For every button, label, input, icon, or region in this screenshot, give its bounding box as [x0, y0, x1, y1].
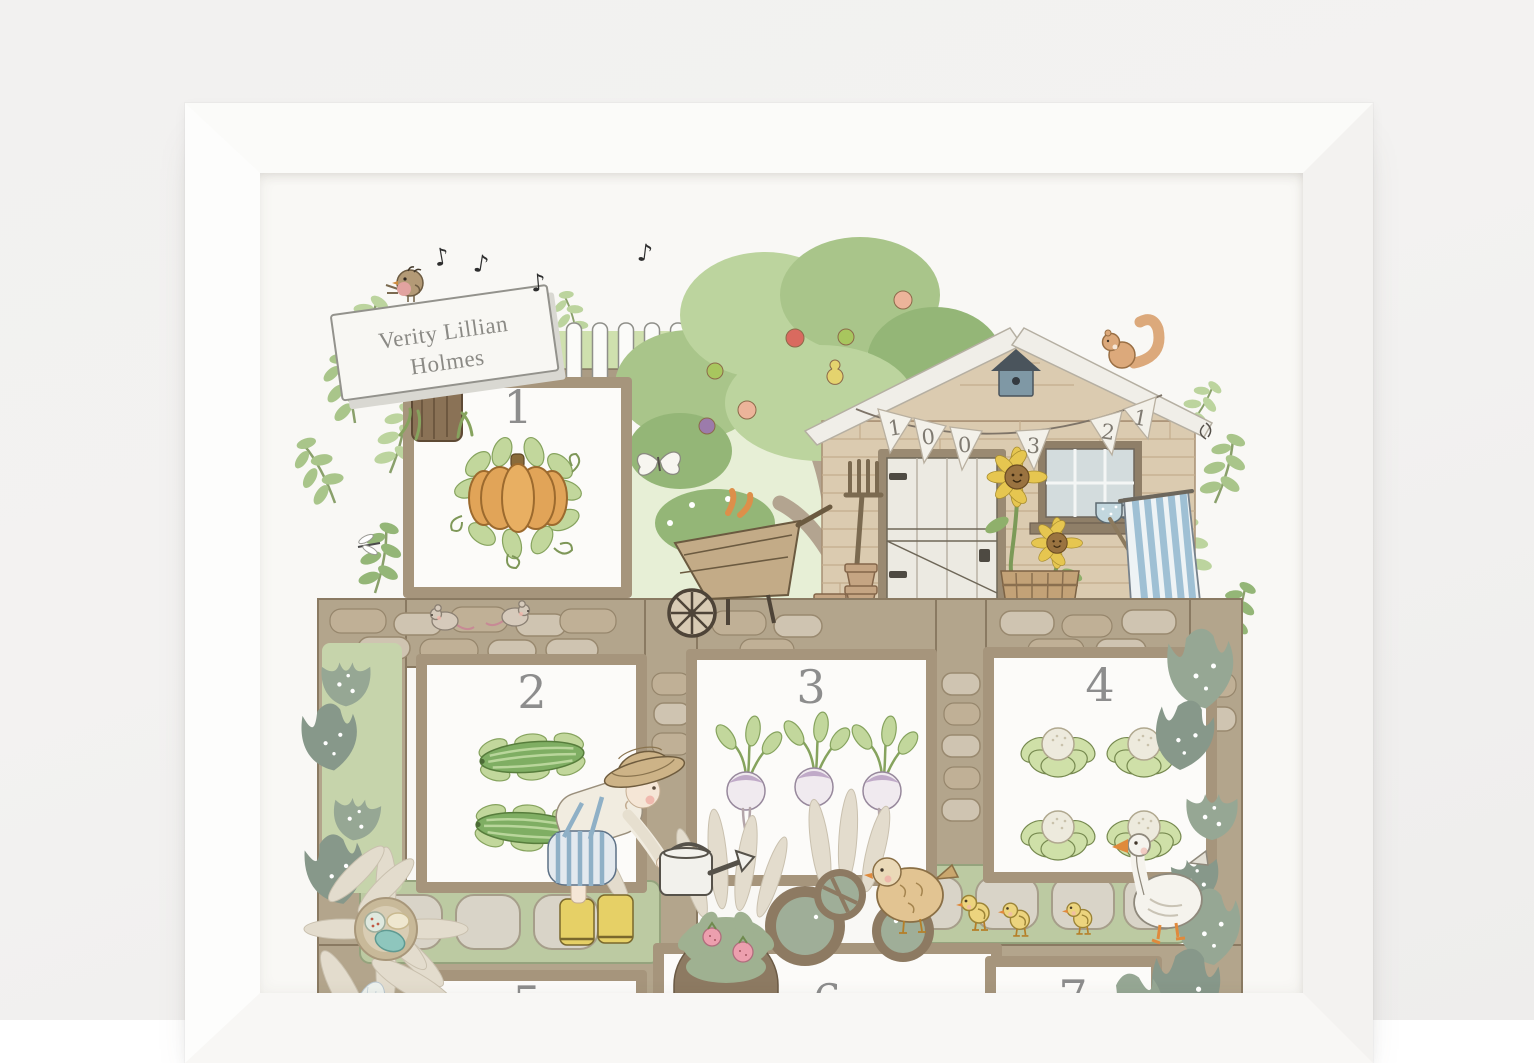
square-number: 5: [512, 976, 541, 993]
bunting-digit: 0: [920, 424, 936, 449]
garden-illustration: 1 0 0 3 2 1: [260, 173, 1303, 993]
square-number: 4: [1085, 658, 1114, 712]
square-number: 2: [517, 665, 546, 719]
wall: 1 0 0 3 2 1: [0, 0, 1534, 1020]
square-number: 3: [796, 660, 825, 714]
bunting-digit: 3: [1026, 434, 1041, 459]
shed-door: [878, 449, 1006, 623]
square-number: 1: [503, 380, 532, 434]
picture-frame: 1 0 0 3 2 1: [185, 103, 1373, 1063]
square-number: 7: [1058, 970, 1087, 993]
square-number: 6: [812, 974, 841, 993]
bunting-digit: 0: [957, 433, 972, 458]
art-print: 1 0 0 3 2 1: [260, 173, 1303, 993]
music-note-icon: ♪: [529, 268, 547, 297]
